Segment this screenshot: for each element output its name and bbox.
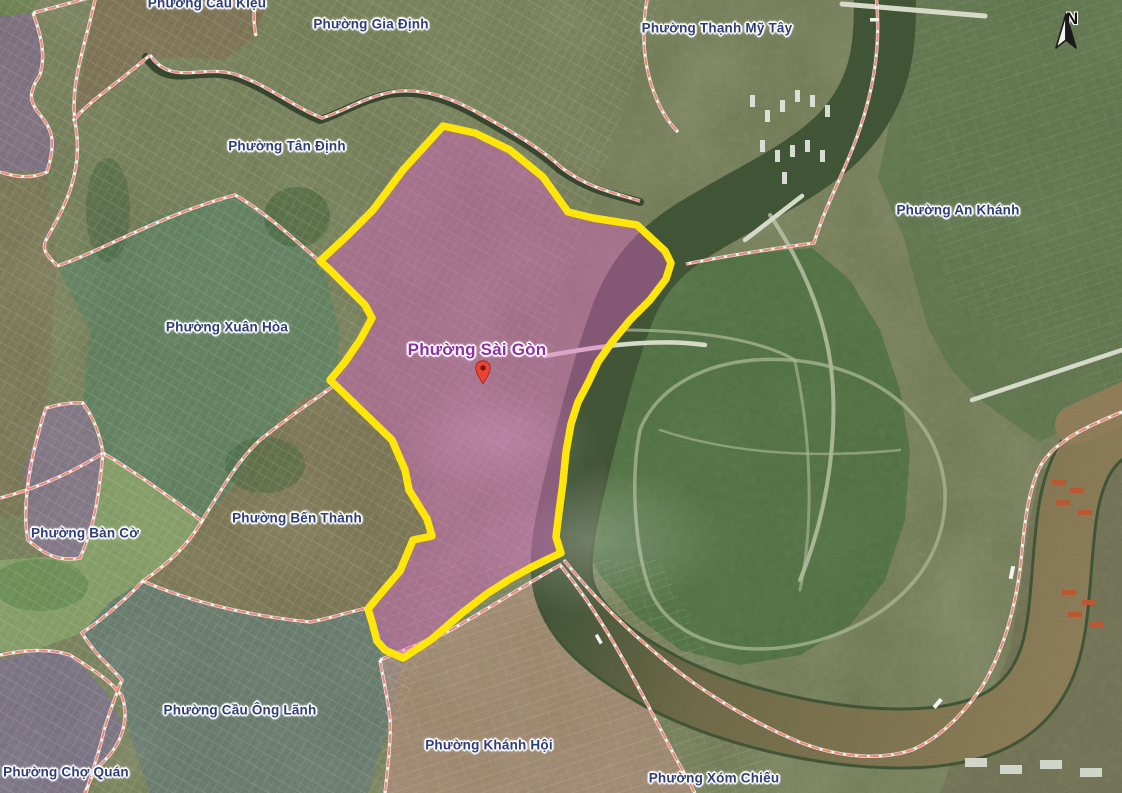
satellite-map: [0, 0, 1122, 793]
map-canvas[interactable]: Phường Cầu KiệuPhường Gia ĐịnhPhường Thạ…: [0, 0, 1122, 793]
location-marker[interactable]: [475, 360, 491, 385]
compass-needle-icon: [1053, 12, 1079, 52]
north-arrow: N: [1053, 12, 1091, 72]
red-pin-icon: [475, 360, 491, 385]
